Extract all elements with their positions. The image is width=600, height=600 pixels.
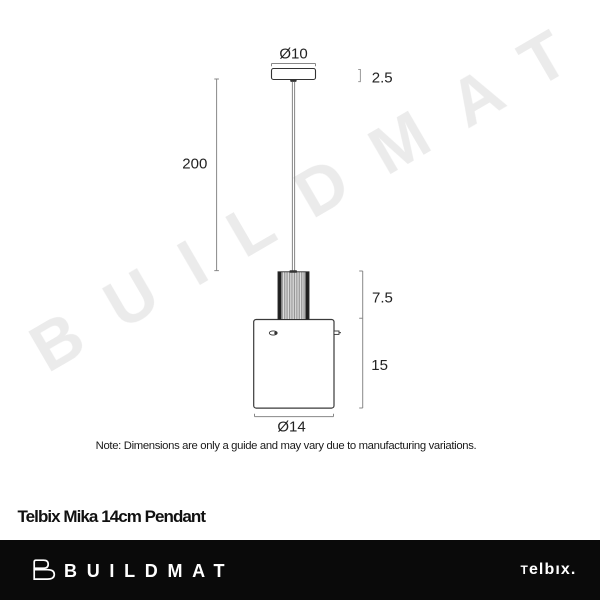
svg-text:Ø14: Ø14 — [277, 418, 305, 435]
svg-text:Ø10: Ø10 — [279, 46, 307, 63]
svg-text:7.5: 7.5 — [372, 289, 393, 306]
svg-text:15: 15 — [371, 357, 388, 374]
svg-text:2.5: 2.5 — [372, 69, 393, 86]
svg-text:200: 200 — [182, 155, 207, 172]
